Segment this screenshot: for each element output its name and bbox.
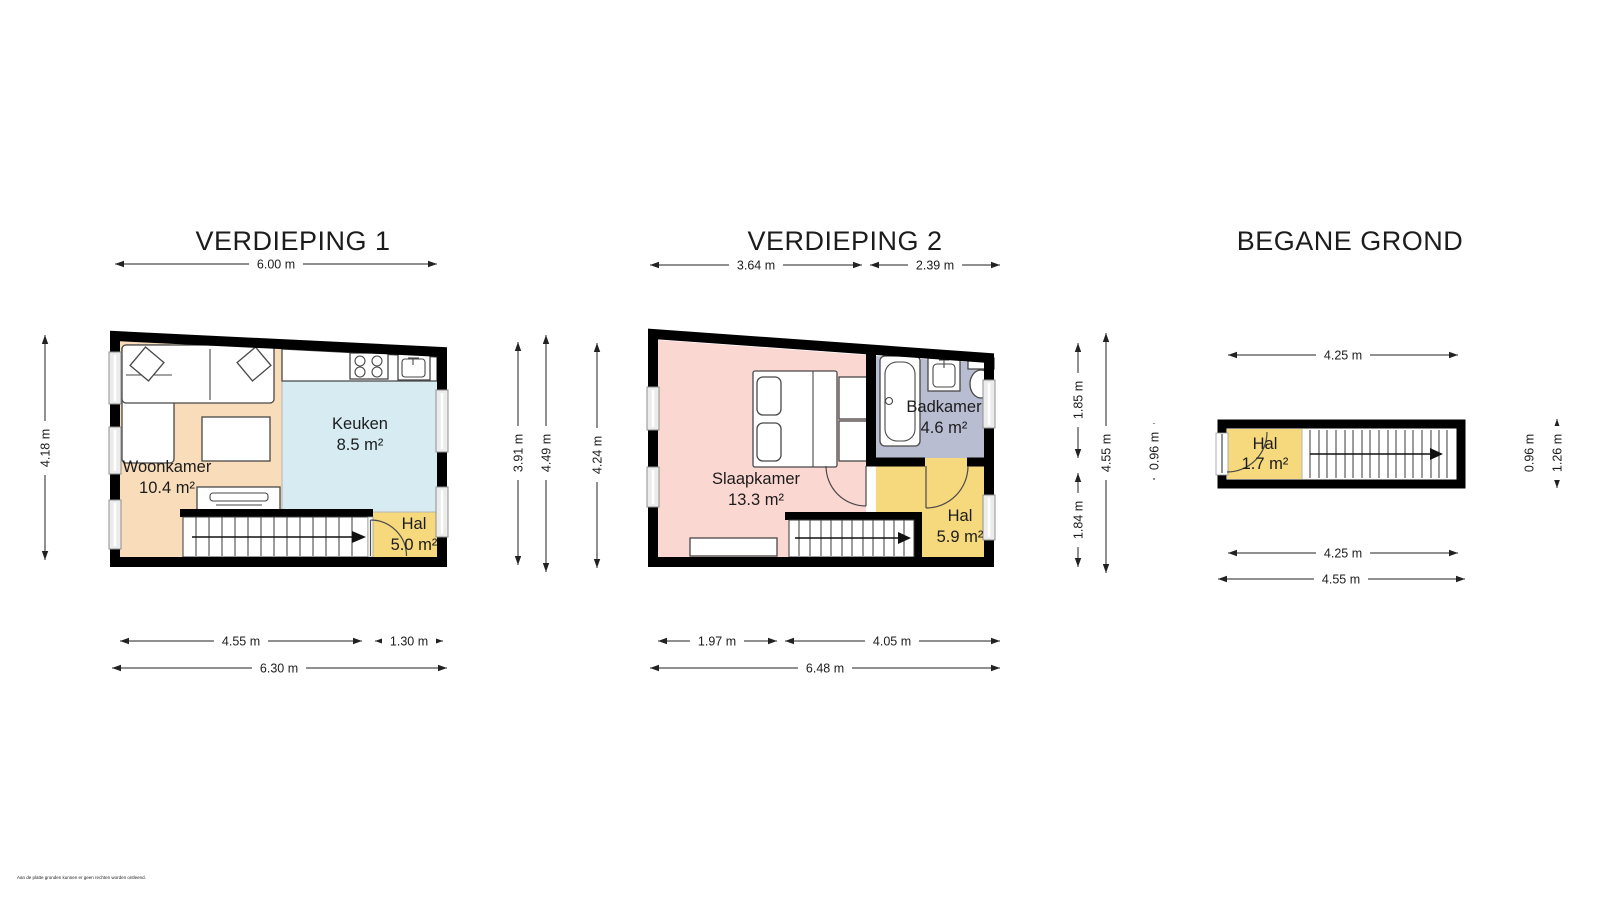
room-label-keuken: Keuken bbox=[332, 415, 388, 433]
coffee-table-icon bbox=[202, 417, 270, 461]
dim-p1-left: 4.18 m bbox=[38, 335, 53, 560]
room-area-badkamer: 4.6 m² bbox=[921, 419, 968, 437]
room-area-hal-2: 5.9 m² bbox=[937, 528, 984, 546]
dim-bg-right-inner: 0.96 m bbox=[1522, 426, 1537, 480]
dim-label: 4.25 m bbox=[1324, 349, 1362, 363]
plan2-title: VERDIEPING 2 bbox=[747, 226, 942, 256]
dim-p1-bottom-total: 6.30 m bbox=[112, 661, 447, 676]
room-area-hal-1: 5.0 m² bbox=[391, 536, 438, 554]
disclaimer-text: Aan de platte gronden kunnen er geen rec… bbox=[17, 875, 146, 880]
dim-label: 1.85 m bbox=[1072, 381, 1086, 419]
dim-label: 4.05 m bbox=[873, 635, 911, 649]
floorplan-verdieping-1: VERDIEPING 1 bbox=[38, 226, 554, 676]
dim-p1-top: 6.00 m bbox=[115, 257, 437, 272]
dim-label: 1.26 m bbox=[1551, 434, 1565, 472]
dim-label: 1.97 m bbox=[698, 635, 736, 649]
floorplan-canvas: VERDIEPING 1 bbox=[0, 0, 1600, 900]
dim-label: 6.00 m bbox=[257, 258, 295, 272]
dim-p2-left: 4.24 m bbox=[590, 343, 605, 568]
stairs-verdieping-1 bbox=[180, 509, 373, 557]
dim-label: 4.55 m bbox=[1100, 434, 1114, 472]
dim-p1-bottom-left: 4.55 m bbox=[120, 634, 362, 649]
dim-bg-left: 0.96 m bbox=[1147, 423, 1162, 480]
room-label-hal-2: Hal bbox=[948, 507, 973, 525]
dim-label: 4.24 m bbox=[591, 436, 605, 474]
room-label-woonkamer: Woonkamer bbox=[123, 458, 212, 476]
dim-label: 1.30 m bbox=[390, 635, 428, 649]
floorplan-drawing: VERDIEPING 1 bbox=[0, 0, 1600, 900]
dim-label: 6.48 m bbox=[806, 662, 844, 676]
dim-p1-bottom-right: 1.30 m bbox=[375, 634, 443, 649]
dim-label: 0.96 m bbox=[1523, 434, 1537, 472]
dim-bg-right-outer: 1.26 m bbox=[1550, 419, 1565, 488]
dim-p2-right-bottom: 1.84 m bbox=[1071, 473, 1086, 567]
dim-p1-right-inner: 3.91 m bbox=[511, 342, 526, 565]
plan1-title: VERDIEPING 1 bbox=[195, 226, 390, 256]
room-label-slaapkamer: Slaapkamer bbox=[712, 470, 801, 488]
dim-label: 6.30 m bbox=[260, 662, 298, 676]
dim-label: 2.39 m bbox=[916, 259, 954, 273]
dim-label: 4.25 m bbox=[1324, 547, 1362, 561]
floorplan-verdieping-2: VERDIEPING 2 bbox=[590, 226, 1114, 676]
dim-p2-top-right: 2.39 m bbox=[870, 258, 1000, 273]
dim-label: 4.18 m bbox=[39, 429, 53, 467]
dim-label: 3.91 m bbox=[512, 434, 526, 472]
dim-label: 0.96 m bbox=[1148, 432, 1162, 470]
room-area-keuken: 8.5 m² bbox=[337, 436, 384, 454]
dim-p2-right-total: 4.55 m bbox=[1099, 333, 1114, 573]
dim-p2-bottom-total: 6.48 m bbox=[650, 661, 1000, 676]
room-area-slaapkamer: 13.3 m² bbox=[728, 491, 784, 509]
dim-label: 4.55 m bbox=[1322, 573, 1360, 587]
dim-label: 1.84 m bbox=[1072, 501, 1086, 539]
room-area-woonkamer: 10.4 m² bbox=[139, 479, 195, 497]
dim-label: 3.64 m bbox=[737, 259, 775, 273]
dim-bg-bottom-inner: 4.25 m bbox=[1228, 546, 1458, 561]
dim-bg-top: 4.25 m bbox=[1228, 348, 1458, 363]
tv-unit-icon bbox=[197, 487, 280, 512]
dim-p2-bottom-right: 4.05 m bbox=[785, 634, 1000, 649]
stairs-begane-grond bbox=[1302, 429, 1456, 479]
room-label-hal-3: Hal bbox=[1253, 435, 1278, 453]
floorplan-begane-grond: BEGANE GROND Hal 1.7 m² 4.25 m bbox=[1147, 226, 1565, 587]
dim-p1-right-outer: 4.49 m bbox=[539, 335, 554, 572]
bed-icon bbox=[753, 371, 867, 467]
plan3-title: BEGANE GROND bbox=[1237, 226, 1464, 256]
room-label-badkamer: Badkamer bbox=[906, 398, 982, 416]
room-label-hal-1: Hal bbox=[402, 515, 427, 533]
stairs-verdieping-2 bbox=[785, 512, 922, 557]
dim-p2-right-top: 1.85 m bbox=[1071, 343, 1086, 458]
washbasin-icon bbox=[928, 357, 960, 391]
dim-p2-top-left: 3.64 m bbox=[650, 258, 862, 273]
dresser-icon bbox=[690, 538, 777, 556]
dim-label: 4.49 m bbox=[540, 434, 554, 472]
dim-label: 4.55 m bbox=[222, 635, 260, 649]
dim-bg-bottom-total: 4.55 m bbox=[1218, 572, 1465, 587]
room-area-hal-3: 1.7 m² bbox=[1242, 455, 1289, 473]
dim-p2-bottom-left: 1.97 m bbox=[658, 634, 777, 649]
